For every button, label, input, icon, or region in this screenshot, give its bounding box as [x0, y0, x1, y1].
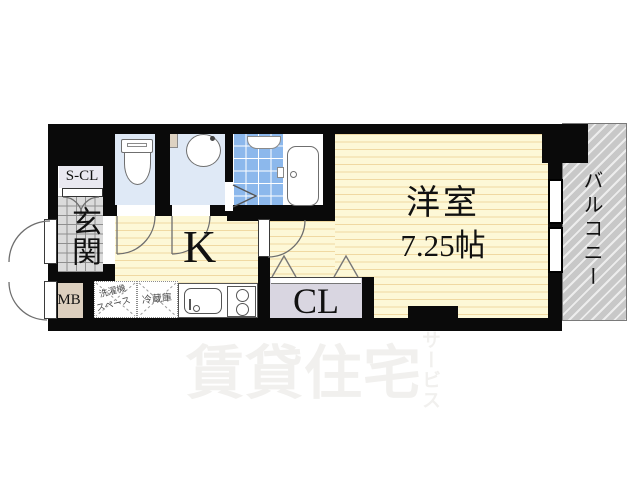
storage-closet-shelf	[62, 188, 103, 197]
wall-bottom-pillar	[408, 306, 458, 318]
kitchen-label: K	[183, 224, 216, 270]
bathtub-drain	[290, 171, 297, 178]
entrance-label: 玄関	[67, 206, 100, 266]
kitchen-faucet-head	[193, 305, 200, 312]
wall-toilet-washroom	[155, 133, 170, 205]
washbasin	[186, 134, 221, 167]
wall-corner-block	[542, 124, 588, 163]
storage-closet-label: S-CL	[66, 169, 99, 184]
entrance-door-leaf	[44, 219, 57, 264]
wall-top	[48, 124, 588, 134]
meter-box-door-arc	[9, 282, 47, 320]
meter-box-label: MB	[57, 293, 80, 308]
meter-box: MB	[55, 283, 83, 318]
kitchen-mainroom-door-leaf	[258, 219, 270, 257]
closet-label: CL	[270, 286, 362, 316]
window-lower	[548, 227, 563, 273]
main-room-label: 洋室	[343, 186, 543, 222]
kitchen-faucet	[189, 299, 191, 310]
stove-burner-bottom	[236, 303, 249, 316]
bath-counter	[247, 136, 281, 149]
meter-box-door-leaf	[44, 281, 57, 319]
opening-entrance-to-kitchen	[103, 216, 115, 264]
storage-closet-box: S-CL	[59, 165, 105, 188]
wall-closet-right	[362, 277, 374, 318]
toilet-tank-lid	[127, 143, 147, 147]
main-room-size-label: 7.25帖	[343, 228, 543, 262]
stove-burner-top	[236, 289, 249, 302]
window-upper	[548, 179, 563, 224]
balcony-label: バルコニー	[581, 170, 601, 290]
opening-washroom-door	[172, 205, 210, 216]
bath-door-handle	[277, 167, 284, 178]
watermark-subtext: サービス	[416, 330, 443, 410]
opening-bath-door	[225, 182, 233, 211]
floor-plan: 賃貸住宅 サービス S-CL MB	[0, 0, 640, 480]
watermark-text: 賃貸住宅	[186, 326, 422, 410]
opening-toilet-door	[117, 205, 155, 216]
washbasin-faucet	[210, 136, 215, 141]
wall-under-bath	[227, 211, 335, 221]
